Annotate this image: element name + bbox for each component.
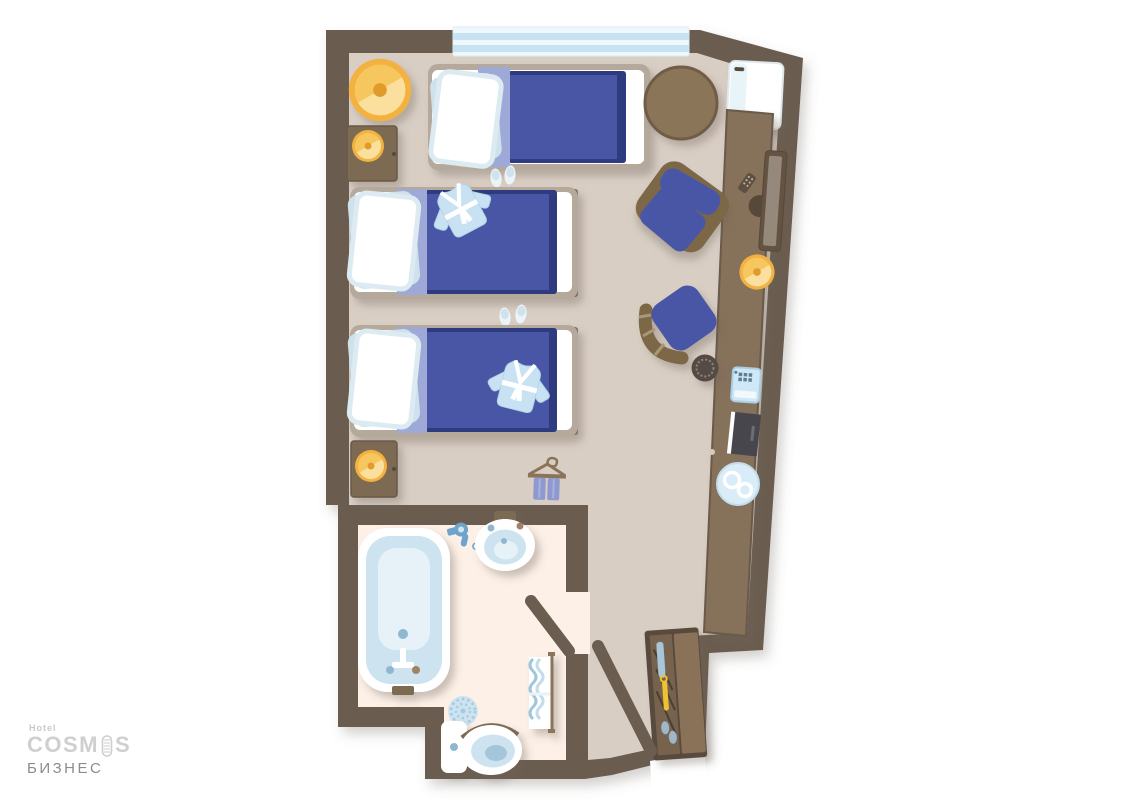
toilet [441,721,522,775]
window [453,27,689,56]
pillow [347,190,421,290]
nightstand-2 [351,441,397,497]
tap-handle [488,525,495,532]
bathtub [358,528,450,695]
bed-1 [428,64,650,170]
menu-book [727,412,761,457]
tap-handle [517,523,524,530]
hotel-tower-icon [100,735,114,757]
bed-2 [347,173,578,299]
knob [392,152,396,156]
tea-tray [717,463,759,505]
pillow [347,328,421,428]
tap-handle [386,666,394,674]
knob [392,467,396,471]
floor-plan-illustration [0,0,1135,808]
brand-name: COSM S [27,734,131,756]
knob [709,449,715,455]
tap-handle [412,666,420,674]
telephone [731,367,761,403]
round-table [645,67,717,139]
pillow [429,71,502,168]
towel-rack [529,652,555,733]
flush-button [450,743,458,751]
wardrobe [644,627,707,760]
wastebasket [692,355,719,382]
brand-logo: Hotel COSM S БИЗНЕС [27,724,131,776]
brand-name-prefix: COSM [27,734,99,756]
brand-name-suffix: S [115,734,131,756]
nightstand-1 [347,126,397,181]
room-type-label: БИЗНЕС [27,761,131,776]
bed-3 [347,325,578,437]
